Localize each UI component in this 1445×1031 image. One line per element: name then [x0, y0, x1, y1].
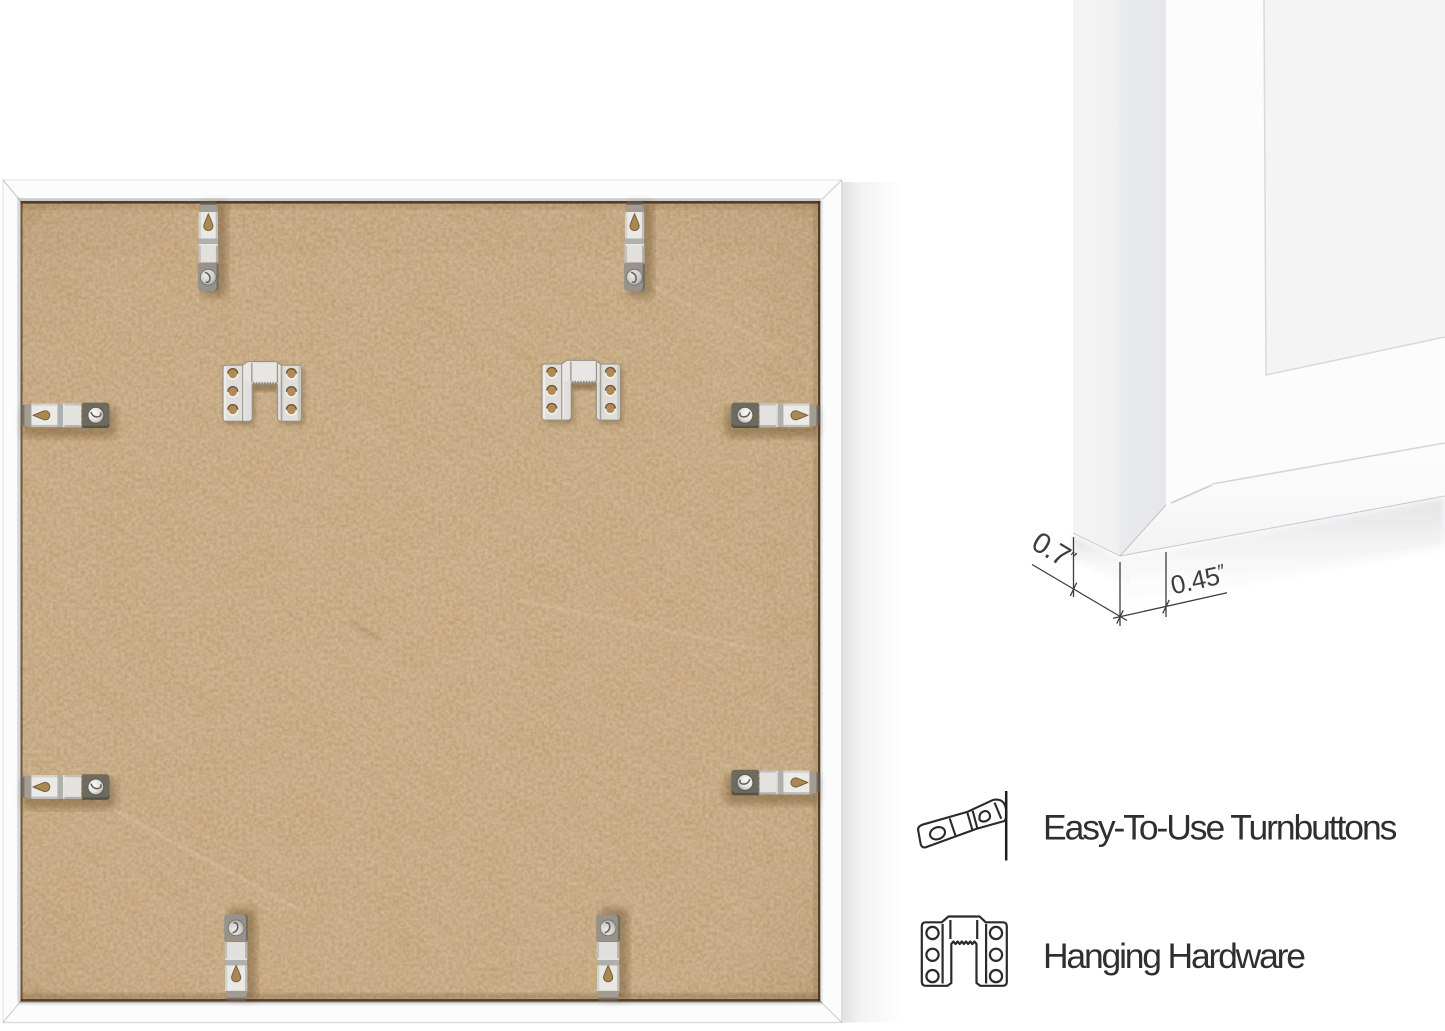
svg-text:Hanging Hardware: Hanging Hardware — [1043, 936, 1305, 976]
svg-text:Easy-To-Use Turnbuttons: Easy-To-Use Turnbuttons — [1043, 808, 1397, 848]
